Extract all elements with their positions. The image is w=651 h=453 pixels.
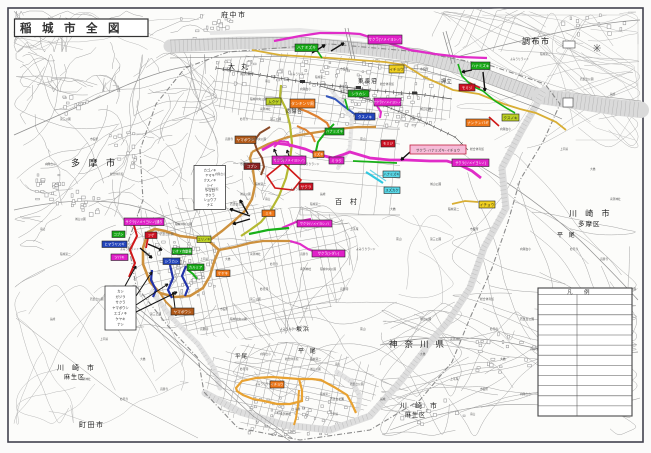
svg-text:青渭神社: 青渭神社	[280, 412, 291, 416]
svg-text:ツゲ: ツゲ	[148, 232, 155, 237]
svg-text:東長沼: 東長沼	[358, 77, 378, 85]
svg-text:よみうりランド: よみうりランド	[510, 57, 529, 61]
svg-text:稲城中央公園: 稲城中央公園	[175, 222, 192, 226]
svg-text:サクラ(ソメイヨシノ): サクラ(ソメイヨシノ)	[300, 221, 329, 226]
svg-text:よみうりランド: よみうりランド	[290, 187, 309, 191]
svg-text:第三公園: 第三公園	[250, 297, 261, 301]
svg-text:第三公園: 第三公園	[275, 157, 286, 161]
svg-text:ヤマボウシ: ヤマボウシ	[174, 309, 192, 314]
svg-text:ナシ: ナシ	[117, 322, 124, 327]
svg-text:サクラ: サクラ	[116, 300, 126, 305]
svg-text:ナンテンバギ: ナンテンバギ	[467, 120, 489, 125]
svg-text:南山: 南山	[360, 327, 366, 331]
svg-text:市役所: 市役所	[240, 162, 248, 166]
svg-text:妙見寺: 妙見寺	[270, 262, 278, 266]
svg-text:城山公園: 城山公園	[75, 217, 86, 221]
svg-text:平 尾: 平 尾	[557, 232, 577, 239]
svg-text:長峰: 長峰	[380, 397, 386, 401]
svg-text:上平尾: 上平尾	[200, 257, 208, 261]
svg-text:上平尾: 上平尾	[350, 227, 359, 231]
svg-text:向陽台小: 向陽台小	[500, 127, 511, 131]
svg-text:南山: 南山	[265, 79, 271, 83]
svg-text:稲城中央公園: 稲城中央公園	[320, 267, 336, 271]
svg-text:市役所: 市役所	[470, 227, 479, 231]
svg-text:南山: 南山	[335, 362, 341, 366]
svg-text:シラカシ: シラカシ	[351, 91, 366, 96]
svg-text:総合体育館: 総合体育館	[480, 297, 494, 301]
svg-text:青渭神社: 青渭神社	[450, 337, 461, 341]
svg-text:高勝寺: 高勝寺	[340, 287, 349, 291]
svg-text:よみうりランド: よみうりランド	[290, 72, 309, 76]
svg-text:若葉台公園: 若葉台公園	[350, 382, 364, 386]
svg-text:サクラ(シダレ): サクラ(シダレ)	[318, 251, 339, 256]
svg-text:よみうりランド: よみうりランド	[120, 247, 139, 251]
svg-text:モミジ: モミジ	[383, 142, 394, 146]
svg-text:稲城中央公園: 稲城中央公園	[250, 97, 267, 101]
svg-text:コブシ: コブシ	[113, 231, 124, 236]
svg-text:第三公園: 第三公園	[430, 237, 441, 241]
svg-text:コブシ: コブシ	[247, 164, 258, 169]
svg-text:第三公園: 第三公園	[270, 117, 281, 121]
svg-text:青渭神社: 青渭神社	[260, 107, 271, 111]
svg-text:南山: 南山	[40, 227, 46, 231]
svg-text:長峰: 長峰	[320, 192, 326, 196]
svg-text:城山公園: 城山公園	[240, 72, 251, 76]
svg-text:青渭神社: 青渭神社	[250, 252, 261, 256]
svg-text:向陽台小: 向陽台小	[260, 352, 271, 356]
svg-text:いすゞ自動車: いすゞ自動車	[172, 248, 192, 253]
svg-text:向陽台小: 向陽台小	[300, 87, 311, 91]
svg-text:カゴノキ: カゴノキ	[204, 168, 217, 173]
svg-text:高勝寺: 高勝寺	[160, 387, 168, 391]
svg-text:川 崎 市: 川 崎 市	[400, 401, 440, 410]
svg-text:よみうりランド: よみうりランド	[300, 162, 320, 166]
svg-text:若葉台公園: 若葉台公園	[230, 202, 244, 206]
svg-text:高勝寺: 高勝寺	[300, 252, 308, 256]
svg-text:南山: 南山	[470, 412, 476, 416]
svg-text:妙見寺: 妙見寺	[490, 327, 498, 331]
svg-text:多 摩 市: 多 摩 市	[71, 157, 118, 168]
svg-text:市役所: 市役所	[340, 67, 349, 71]
svg-text:サクラ(ソメイヨシノ): サクラ(ソメイヨシノ)	[373, 99, 402, 104]
svg-text:向陽台: 向陽台	[286, 108, 303, 115]
svg-text:市役所: 市役所	[90, 137, 98, 141]
svg-text:クスノキ: クスノキ	[503, 115, 518, 120]
svg-text:青渭神社: 青渭神社	[300, 267, 311, 271]
svg-text:ムクゲ: ムクゲ	[268, 99, 279, 104]
svg-text:城山公園: 城山公園	[420, 317, 431, 321]
svg-text:稲城第二: 稲城第二	[315, 75, 326, 79]
svg-text:クスノキ: クスノキ	[204, 177, 217, 182]
svg-text:稲城中央公園: 稲城中央公園	[250, 137, 266, 141]
svg-text:イチョウ: イチョウ	[480, 202, 495, 207]
svg-text:ヤマボウシ: ヤマボウシ	[112, 305, 128, 310]
svg-text:長峰: 長峰	[610, 92, 616, 96]
svg-text:ハナミズキ: ハナミズキ	[297, 45, 316, 50]
svg-text:稲城第二: 稲城第二	[310, 357, 321, 361]
svg-text:百 村: 百 村	[335, 197, 360, 206]
svg-text:大橋: 大橋	[420, 352, 426, 356]
svg-text:川 崎 市: 川 崎 市	[569, 208, 612, 218]
svg-text:ケヤキ: ケヤキ	[218, 270, 229, 275]
svg-text:平 尾: 平 尾	[298, 348, 318, 355]
svg-text:ハナミズキ: ハナミズキ	[472, 63, 490, 68]
svg-text:稲城市全図: 稲城市全図	[20, 21, 130, 35]
svg-text:妙見寺: 妙見寺	[240, 117, 248, 121]
svg-text:川 崎 市: 川 崎 市	[57, 363, 97, 372]
svg-text:若葉台公園: 若葉台公園	[330, 397, 344, 401]
svg-text:大橋: 大橋	[390, 207, 396, 211]
svg-text:総合体育館: 総合体育館	[380, 82, 394, 86]
svg-text:城山公園: 城山公園	[420, 107, 431, 111]
svg-text:サクラ(ソメイヨシノ): サクラ(ソメイヨシノ)	[455, 160, 486, 165]
svg-text:サクラ: サクラ	[205, 192, 215, 197]
svg-text:ナエ: ナエ	[207, 202, 213, 207]
svg-text:高勝寺: 高勝寺	[600, 257, 608, 261]
svg-text:城山公園: 城山公園	[310, 367, 321, 371]
svg-text:クスノキ: クスノキ	[358, 114, 373, 119]
svg-text:調布市: 調布市	[522, 36, 551, 46]
svg-text:ヒマラヤスギ: ヒマラヤスギ	[104, 241, 125, 246]
svg-text:総合体育館: 総合体育館	[470, 147, 484, 151]
svg-text:城山公園: 城山公園	[430, 182, 441, 186]
svg-text:向陽台小: 向陽台小	[520, 392, 531, 396]
svg-text:ハナミズキ: ハナミズキ	[384, 171, 400, 176]
svg-text:大 丸: 大 丸	[228, 62, 250, 71]
svg-text:市役所: 市役所	[480, 387, 488, 391]
svg-text:稲城中央公園: 稲城中央公園	[230, 317, 247, 321]
svg-text:若葉台公園: 若葉台公園	[520, 317, 534, 321]
svg-text:向陽台小: 向陽台小	[215, 172, 226, 176]
svg-text:町田市: 町田市	[79, 420, 105, 429]
svg-text:スズカケ: スズカケ	[385, 187, 399, 192]
svg-text:サクラ(ソメイヨシノ): サクラ(ソメイヨシノ)	[369, 37, 402, 42]
svg-text:モミジ: モミジ	[462, 86, 473, 90]
svg-text:若葉台公園: 若葉台公園	[340, 89, 354, 93]
svg-text:カルミア: カルミア	[189, 264, 203, 269]
svg-text:上平尾: 上平尾	[100, 337, 108, 341]
svg-text:長峰: 長峰	[295, 407, 301, 411]
svg-text:ショウブ: ショウブ	[204, 197, 218, 202]
svg-text:平尾: 平尾	[235, 353, 248, 360]
svg-text:大橋: 大橋	[225, 257, 231, 261]
svg-text:大橋: 大橋	[410, 117, 416, 121]
svg-text:タンキンリ周: タンキンリ周	[291, 101, 314, 106]
svg-text:ガジラ: ガジラ	[116, 294, 126, 299]
svg-text:市役所: 市役所	[220, 307, 228, 311]
svg-text:サクラ･ハナミズキ･イチョウ: サクラ･ハナミズキ･イチョウ	[416, 148, 460, 153]
svg-text:ツバキ: ツバキ	[114, 255, 125, 259]
svg-text:長峰: 長峰	[365, 97, 371, 101]
svg-text:上平尾: 上平尾	[450, 377, 459, 381]
svg-text:総合体育館: 総合体育館	[285, 357, 299, 361]
svg-text:押立: 押立	[441, 78, 452, 85]
svg-text:上平尾: 上平尾	[560, 147, 568, 151]
svg-text:高勝寺: 高勝寺	[225, 137, 233, 141]
svg-text:第三公園: 第三公園	[60, 117, 71, 121]
svg-text:稲城第二: 稲城第二	[310, 202, 321, 206]
svg-text:シイ: シイ	[207, 183, 213, 187]
svg-text:ケヤキ: ケヤキ	[116, 316, 126, 321]
svg-text:総合体育館: 総合体育館	[110, 172, 124, 176]
svg-text:よみうりランド: よみうりランド	[280, 327, 300, 331]
svg-text:エゴノキ: エゴノキ	[114, 311, 127, 316]
svg-text:神奈川県: 神奈川県	[389, 339, 451, 349]
svg-text:麻生区: 麻生区	[405, 411, 426, 419]
svg-text:高勝寺: 高勝寺	[530, 347, 538, 351]
svg-text:府中市: 府中市	[221, 10, 247, 19]
svg-text:ユリノキ: ユリノキ	[198, 237, 211, 241]
svg-text:青渭神社: 青渭神社	[610, 197, 621, 201]
svg-text:ミラク: ミラク	[331, 158, 342, 163]
svg-text:大橋: 大橋	[590, 167, 596, 171]
svg-text:稲城第二: 稲城第二	[320, 392, 331, 396]
svg-text:若葉台公園: 若葉台公園	[580, 77, 594, 81]
svg-text:ハナミズキ: ハナミズキ	[326, 129, 344, 134]
svg-text:市役所: 市役所	[420, 67, 429, 71]
svg-text:凡 例: 凡 例	[567, 288, 593, 296]
svg-text:長峰: 長峰	[145, 252, 151, 256]
svg-text:高勝寺: 高勝寺	[200, 327, 209, 331]
svg-text:南山: 南山	[396, 237, 402, 241]
svg-text:向陽台小: 向陽台小	[45, 162, 56, 166]
svg-text:稲城第二: 稲城第二	[255, 182, 266, 186]
svg-text:妙見寺: 妙見寺	[570, 247, 578, 251]
svg-text:稲城第二: 稲城第二	[540, 52, 551, 56]
svg-text:ミネ: ミネ	[265, 210, 272, 215]
svg-text:城山公園: 城山公園	[240, 192, 251, 196]
svg-text:稲城第二: 稲城第二	[60, 252, 71, 256]
svg-text:若葉台公園: 若葉台公園	[160, 232, 174, 236]
svg-text:第三公園: 第三公園	[150, 312, 161, 316]
svg-text:カシ: カシ	[117, 289, 124, 294]
svg-text:妙見寺: 妙見寺	[240, 367, 249, 371]
svg-text:上平尾: 上平尾	[330, 412, 338, 416]
svg-text:ヤマキ: ヤマキ	[205, 172, 215, 177]
svg-text:大橋: 大橋	[500, 357, 506, 361]
svg-text:妙見寺: 妙見寺	[120, 397, 128, 401]
svg-text:イチョウ: イチョウ	[389, 66, 404, 71]
svg-text:青渭神社: 青渭神社	[80, 377, 91, 381]
svg-text:若葉台公園: 若葉台公園	[90, 297, 104, 301]
svg-text:サクラ(ソメイヨシノ)通り: サクラ(ソメイヨシノ)通り	[125, 219, 162, 224]
svg-text:シラカシ: シラカシ	[165, 258, 179, 263]
svg-text:妙見寺: 妙見寺	[260, 287, 269, 291]
svg-text:稲城第二: 稲城第二	[448, 207, 459, 211]
svg-text:南山: 南山	[360, 137, 366, 141]
svg-text:上平尾: 上平尾	[395, 92, 403, 96]
svg-text:ミズキ: ミズキ	[314, 151, 324, 156]
svg-text:よみうりランド: よみうりランド	[356, 247, 376, 251]
svg-text:南山: 南山	[265, 197, 271, 201]
svg-text:総合体育館: 総合体育館	[205, 187, 219, 191]
svg-text:大橋: 大橋	[140, 357, 146, 361]
svg-text:向陽台小: 向陽台小	[520, 247, 531, 251]
svg-text:多摩区: 多摩区	[578, 219, 601, 228]
svg-text:よみうりランド: よみうりランド	[255, 382, 274, 386]
svg-text:長峰: 長峰	[50, 317, 56, 321]
